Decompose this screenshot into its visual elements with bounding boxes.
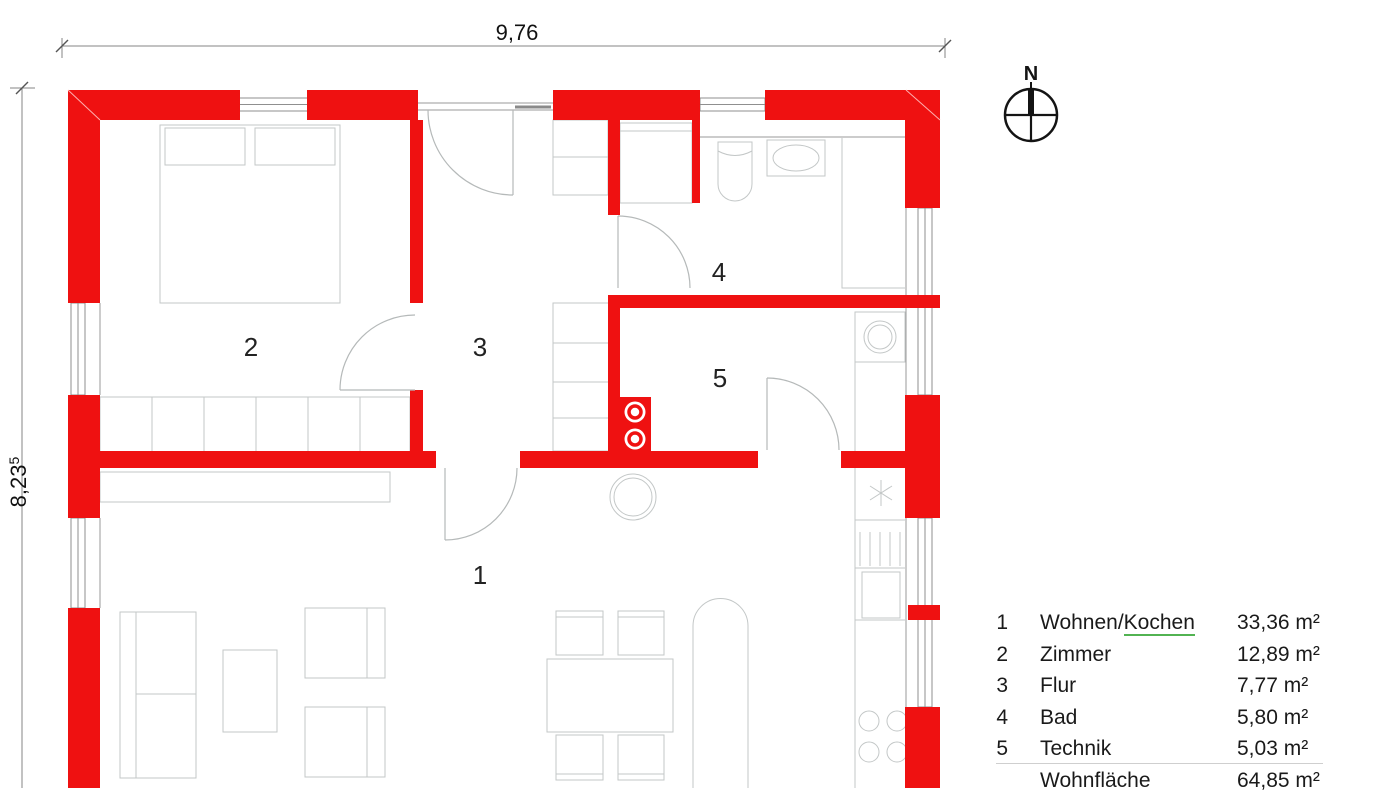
legend-room-area: 5,80 m² xyxy=(1237,702,1308,734)
legend-room-area: 5,03 m² xyxy=(1237,733,1308,765)
legend-room-name: Bad xyxy=(1040,702,1237,734)
armchair xyxy=(305,707,385,777)
window-top-left xyxy=(238,98,308,111)
legend-room-area: 12,89 m² xyxy=(1237,639,1320,671)
legend-total-area: 64,85 m² xyxy=(1237,765,1320,797)
window-top-right xyxy=(700,98,765,111)
drainer-symbol xyxy=(860,532,900,566)
room-label-technik: 5 xyxy=(713,363,727,393)
hall-closet-upper xyxy=(553,120,608,195)
legend-row: 3 Flur 7,77 m² xyxy=(992,670,1352,702)
compass-north-label: N xyxy=(1024,63,1038,85)
door-bedroom xyxy=(340,315,415,390)
interior-wall-living xyxy=(841,451,908,468)
floor-plan: 1 2 3 4 5 9,76 8,235 xyxy=(0,0,990,788)
legend-room-number: 4 xyxy=(992,702,1008,734)
sofa xyxy=(120,612,196,778)
dining-chair xyxy=(556,611,603,655)
kitchen-island xyxy=(693,599,748,789)
legend-total-name: Wohnfläche xyxy=(1040,765,1237,797)
legend-row: 2 Zimmer 12,89 m² xyxy=(992,639,1352,671)
windows xyxy=(71,98,932,707)
legend-room-number: 2 xyxy=(992,639,1008,671)
wardrobe xyxy=(100,397,410,452)
exterior-wall-top xyxy=(553,90,700,120)
dining-chair xyxy=(618,735,664,780)
exterior-wall-left xyxy=(68,90,100,303)
exterior-wall-left xyxy=(68,608,100,788)
legend-room-name: Zimmer xyxy=(1040,639,1237,671)
legend-separator xyxy=(996,763,1323,764)
bathtub xyxy=(842,138,905,288)
interior-wall-bedroom xyxy=(410,390,423,451)
interior-wall-bath-technik xyxy=(610,295,940,308)
dimension-height-label: 8,235 xyxy=(6,456,31,507)
wall-face-lines xyxy=(100,103,906,707)
legend-room-number: 3 xyxy=(992,670,1008,702)
bed xyxy=(160,125,340,303)
floor-plan-page: { "plan": { "dimension_width": { "value"… xyxy=(0,0,1400,788)
exterior-wall-right xyxy=(908,605,940,620)
legend-room-name: Flur xyxy=(1040,670,1237,702)
coffee-table xyxy=(223,650,277,732)
toilet xyxy=(718,142,752,201)
legend-row: 4 Bad 5,80 m² xyxy=(992,702,1352,734)
room-label-bad: 4 xyxy=(712,257,726,287)
legend-room-area: 33,36 m² xyxy=(1237,607,1320,639)
legend-room-name: Technik xyxy=(1040,733,1237,765)
round-table xyxy=(610,474,656,520)
interior-wall-living xyxy=(68,451,436,468)
exterior-wall-right xyxy=(905,707,940,788)
legend-total-row: Wohnfläche 64,85 m² xyxy=(992,765,1352,797)
window-left-upper xyxy=(71,303,85,395)
sink-symbol xyxy=(870,480,892,506)
interior-wall-living xyxy=(520,451,758,468)
legend-row: 1 Wohnen/Kochen 33,36 m² xyxy=(992,607,1352,639)
oven xyxy=(862,572,900,618)
legend-name-prefix: Wohnen/ xyxy=(1040,611,1124,634)
legend-total-spacer xyxy=(992,765,1008,797)
dining-table xyxy=(547,659,673,732)
bath-niche xyxy=(620,123,692,203)
interior-wall-bedroom xyxy=(410,120,423,303)
room-label-flur: 3 xyxy=(473,332,487,362)
legend-row: 5 Technik 5,03 m² xyxy=(992,733,1352,765)
room-label-wohnen: 1 xyxy=(473,560,487,590)
dining-chair xyxy=(556,735,603,780)
washbasin xyxy=(767,140,825,176)
cooktop xyxy=(859,711,907,762)
exterior-wall-right xyxy=(905,395,940,518)
dimension-height: 8,235 xyxy=(6,82,35,788)
door-entrance xyxy=(428,110,513,195)
interior-wall-technik xyxy=(608,295,620,451)
room-label-zimmer: 2 xyxy=(244,332,258,362)
armchair xyxy=(305,608,385,678)
door-living xyxy=(445,468,517,540)
door-technik xyxy=(767,378,839,450)
legend-name-underlined: Kochen xyxy=(1124,611,1195,636)
interior-wall-bath-niche xyxy=(692,120,700,203)
dimension-width-label: 9,76 xyxy=(496,20,539,45)
legend-room-number: 5 xyxy=(992,733,1008,765)
interior-wall-bath xyxy=(608,120,620,215)
room-legend: 1 Wohnen/Kochen 33,36 m² 2 Zimmer 12,89 … xyxy=(992,607,1352,797)
sideboard xyxy=(100,472,390,502)
hall-shelf-lower xyxy=(553,303,615,451)
north-compass: N xyxy=(985,53,1085,158)
exterior-wall-top xyxy=(307,90,418,120)
dining-chair xyxy=(618,611,664,655)
legend-room-area: 7,77 m² xyxy=(1237,670,1308,702)
window-left-lower xyxy=(71,518,85,608)
door-bath xyxy=(618,216,690,288)
dimension-width: 9,76 xyxy=(56,20,951,58)
legend-room-number: 1 xyxy=(992,607,1008,639)
exterior-wall-right xyxy=(905,90,940,208)
legend-room-name: Wohnen/Kochen xyxy=(1040,607,1237,639)
boiler xyxy=(855,312,905,362)
